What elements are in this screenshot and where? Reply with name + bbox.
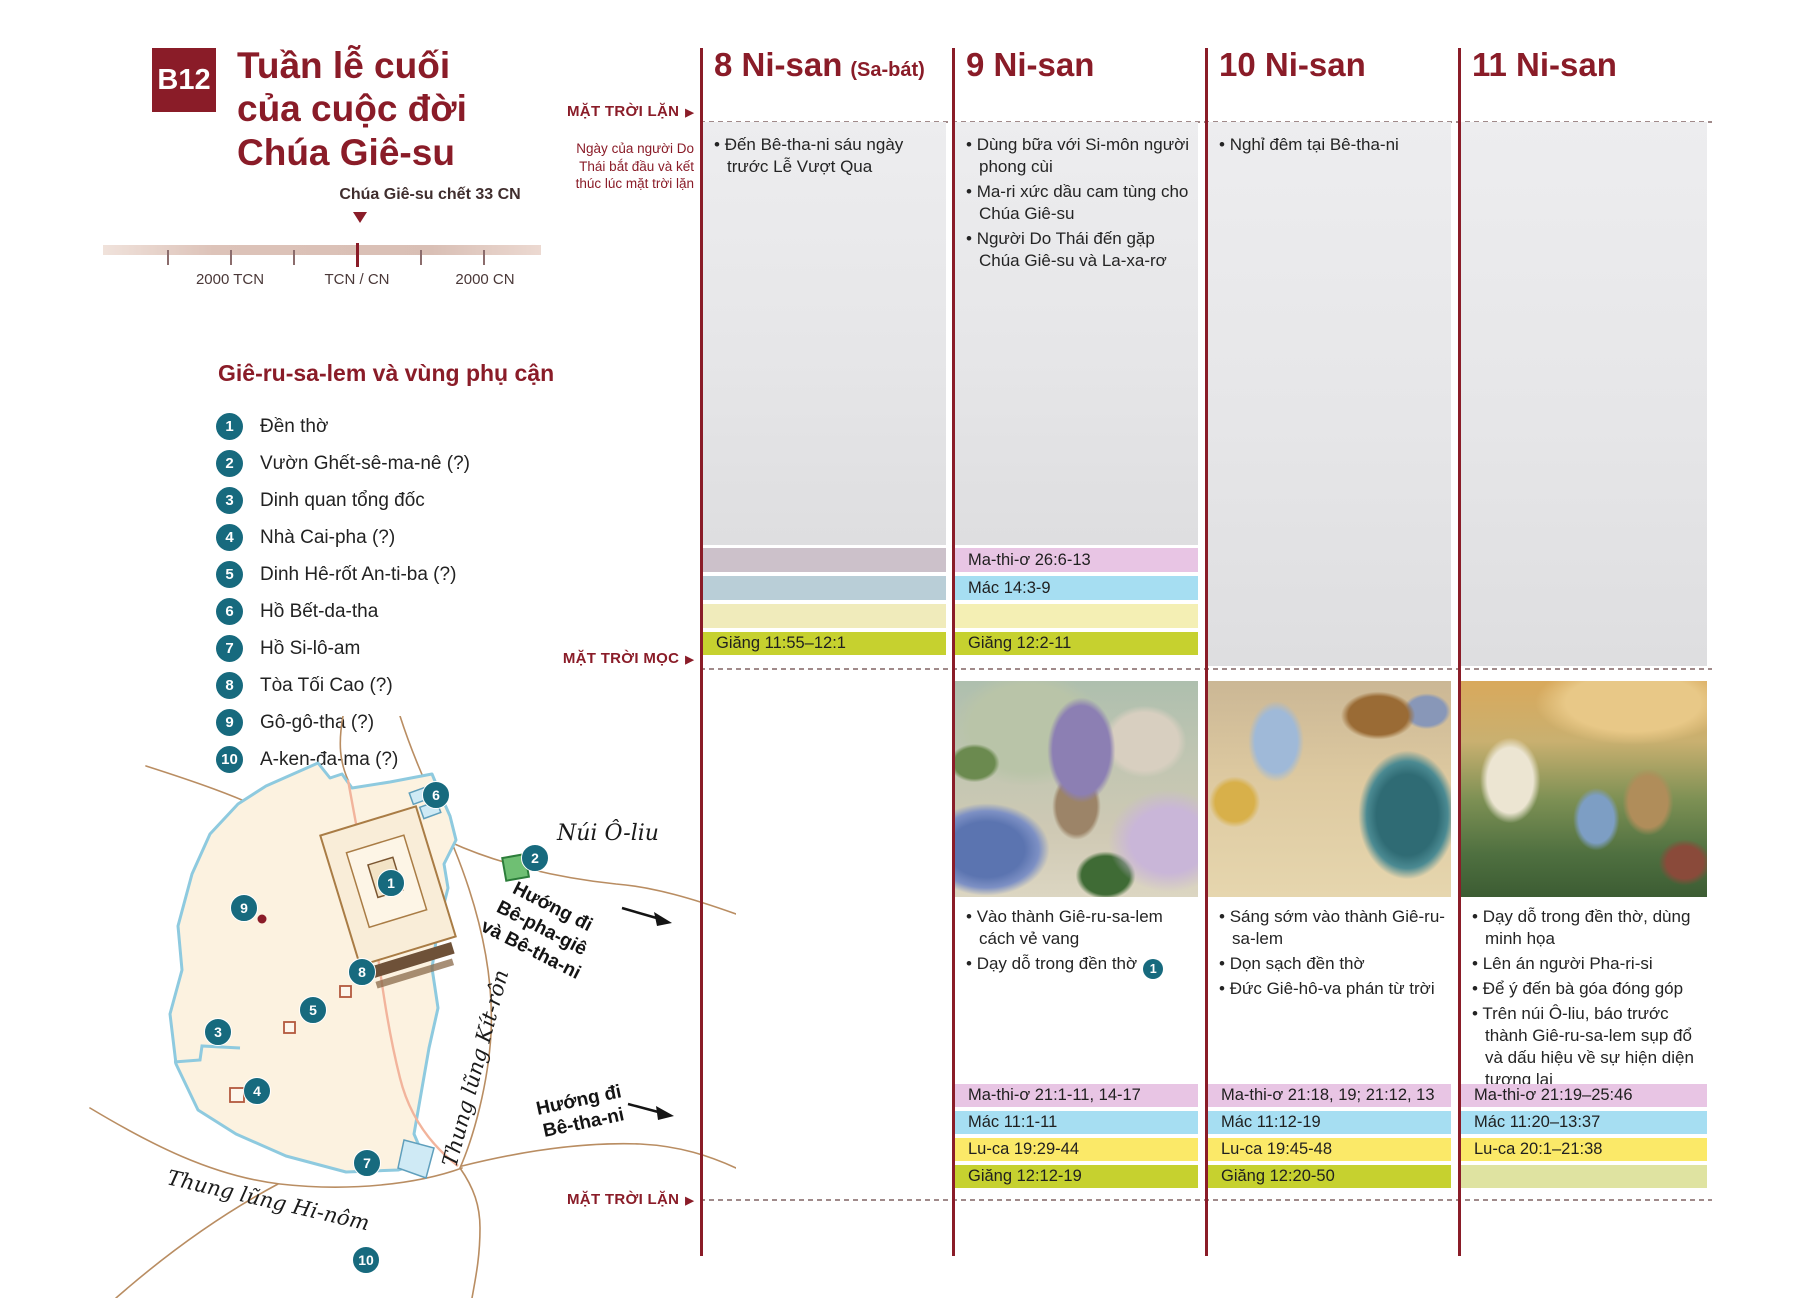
svg-text:3: 3 xyxy=(214,1024,222,1040)
column-10-nisan: 10 Ni-san Nghỉ đêm tại Bê-tha-ni Sáng sớ… xyxy=(1208,0,1451,1300)
legend-item-label: Hồ Bết-da-tha xyxy=(260,601,378,623)
scripture-ref: Mác 14:3-9 xyxy=(955,579,1051,598)
legend-item-label: Dinh quan tổng đốc xyxy=(260,490,425,512)
column-8-nisan: 8 Ni-san(Sa-bát) Đến Bê-tha-ni sáu ngày … xyxy=(703,0,946,1300)
sunrise-text: MẶT TRỜI MỌC xyxy=(563,650,679,667)
scripture-ref: Ma-thi-ơ 21:18, 19; 21:12, 13 xyxy=(1208,1086,1435,1105)
sunset-top-text: MẶT TRỜI LẶN xyxy=(567,103,679,120)
legend-number-badge: 1 xyxy=(216,413,243,440)
legend-item-label: Nhà Cai-pha (?) xyxy=(260,527,395,549)
ref-band-john: Giăng 12:20-50 xyxy=(1208,1165,1451,1188)
event-item: Lên án người Pha-ri-si xyxy=(1472,953,1701,975)
ref-band-luke-empty xyxy=(703,604,946,628)
scripture-ref: Giăng 12:12-19 xyxy=(955,1167,1082,1186)
timeline-tick xyxy=(293,250,295,265)
ref-band-mark: Mác 11:20–13:37 xyxy=(1461,1111,1707,1134)
event-item: Dùng bữa với Si-môn người phong cùi xyxy=(966,134,1192,178)
legend-item: 2Vườn Ghết-sê-ma-nê (?) xyxy=(216,445,636,482)
map-label-kidron-valley: Thung lũng Kít-rôn xyxy=(438,967,514,1169)
map-marker-5: 5 xyxy=(300,997,327,1024)
scripture-ref: Ma-thi-ơ 21:1-11, 14-17 xyxy=(955,1086,1141,1105)
legend-item-label: Đền thờ xyxy=(260,416,328,438)
svg-text:5: 5 xyxy=(309,1002,317,1018)
sunset-top-label: MẶT TRỜI LẶN▶ xyxy=(474,103,694,120)
map-ref-badge: 1 xyxy=(1143,959,1163,979)
ref-band-mark: Mác 11:12-19 xyxy=(1208,1111,1451,1134)
event-text: Ma-ri xức dầu cam tùng cho Chúa Giê-su xyxy=(977,182,1189,223)
infographic-canvas: B12 Tuần lễ cuối của cuộc đời Chúa Giê-s… xyxy=(0,0,1800,1300)
jewish-day-note: Ngày của người Do Thái bắt đầu và kết th… xyxy=(558,140,694,193)
chart-id-badge: B12 xyxy=(152,48,216,112)
event-text: Nghỉ đêm tại Bê-tha-ni xyxy=(1230,135,1399,154)
event-text: Lên án người Pha-ri-si xyxy=(1483,954,1653,973)
sunrise-label: MẶT TRỜI MỌC▶ xyxy=(474,650,694,667)
legend-item-label: Dinh Hê-rốt An-ti-ba (?) xyxy=(260,564,456,586)
svg-text:4: 4 xyxy=(253,1083,261,1099)
column-9-nisan: 9 Ni-san Dùng bữa với Si-môn người phong… xyxy=(955,0,1198,1300)
scripture-ref: Giăng 12:20-50 xyxy=(1208,1167,1335,1186)
legend-number-badge: 7 xyxy=(216,635,243,662)
svg-text:10: 10 xyxy=(358,1252,374,1268)
event-item: Trên núi Ô-liu, báo trước thành Giê-ru-s… xyxy=(1472,1003,1701,1091)
night-panel xyxy=(1208,122,1451,666)
scripture-ref: Lu-ca 19:45-48 xyxy=(1208,1140,1332,1159)
map-label-road-bethany: Hướng đi Bê-tha-ni xyxy=(534,1081,628,1142)
column-11-nisan: 11 Ni-san Dạy dỗ trong đền thờ, dùng min… xyxy=(1461,0,1707,1300)
legend-number-badge: 4 xyxy=(216,524,243,551)
map-marker-2: 2 xyxy=(522,845,549,872)
timeline-death-label: Chúa Giê-su chết 33 CN xyxy=(300,186,560,204)
night-events: Nghỉ đêm tại Bê-tha-ni xyxy=(1219,134,1445,159)
night-panel xyxy=(1461,122,1707,666)
ref-band-luke: Lu-ca 19:29-44 xyxy=(955,1138,1198,1161)
triangle-right-icon: ▶ xyxy=(685,1195,694,1207)
map-label-hinnom-valley: Thung lũng Hi-nôm xyxy=(165,1165,372,1235)
event-text: Đức Giê-hô-va phán từ trời xyxy=(1230,979,1435,998)
event-item: Để ý đến bà góa đóng góp xyxy=(1472,978,1701,1000)
ref-band-matthew: Ma-thi-ơ 21:19–25:46 xyxy=(1461,1084,1707,1107)
ref-band-matthew: Ma-thi-ơ 26:6-13 xyxy=(955,548,1198,572)
legend-item: 4Nhà Cai-pha (?) xyxy=(216,519,636,556)
legend-number-badge: 2 xyxy=(216,450,243,477)
ref-band-mark: Mác 14:3-9 xyxy=(955,576,1198,600)
timeline-tick xyxy=(420,250,422,265)
event-item: Người Do Thái đến gặp Chúa Giê-su và La-… xyxy=(966,228,1192,272)
ref-band-luke: Lu-ca 20:1–21:38 xyxy=(1461,1138,1707,1161)
sunset-bottom-text: MẶT TRỜI LẶN xyxy=(567,1191,679,1208)
night-panel xyxy=(703,122,946,545)
timeline-tick-label: 2000 CN xyxy=(435,271,535,288)
legend-number-badge: 3 xyxy=(216,487,243,514)
ref-band-john: Giăng 12:12-19 xyxy=(955,1165,1198,1188)
event-text: Dùng bữa với Si-môn người phong cùi xyxy=(977,135,1189,176)
event-item: Đến Bê-tha-ni sáu ngày trước Lễ Vượt Qua xyxy=(714,134,940,178)
map-marker-9: 9 xyxy=(231,895,258,922)
scripture-ref: Lu-ca 20:1–21:38 xyxy=(1461,1140,1602,1159)
event-text: Trên núi Ô-liu, báo trước thành Giê-ru-s… xyxy=(1482,1004,1694,1089)
event-text: Vào thành Giê-ru-sa-lem cách vẻ vang xyxy=(977,907,1163,948)
event-text: Sáng sớm vào thành Giê-ru-sa-lem xyxy=(1230,907,1445,948)
map-golgotha-dot xyxy=(258,915,267,924)
map-marker-6: 6 xyxy=(423,782,450,809)
jerusalem-map: Núi Ô-liu Hướng đi Bê-pha-giê và Bê-tha-… xyxy=(88,716,736,1298)
night-events: Dùng bữa với Si-môn người phong cùi Ma-r… xyxy=(966,134,1192,275)
timeline-tick-bc-ad xyxy=(356,243,359,267)
column-header: 11 Ni-san xyxy=(1472,46,1617,84)
column-header: 10 Ni-san xyxy=(1219,46,1366,84)
triangle-right-icon: ▶ xyxy=(685,654,694,666)
event-text: Đến Bê-tha-ni sáu ngày trước Lễ Vượt Qua xyxy=(725,135,904,176)
map-marker-3: 3 xyxy=(205,1019,232,1046)
svg-text:8: 8 xyxy=(358,964,366,980)
map-arrow-bethphage xyxy=(622,908,672,926)
column-header: 9 Ni-san xyxy=(966,46,1094,84)
event-item: Vào thành Giê-ru-sa-lem cách vẻ vang xyxy=(966,906,1192,950)
event-text: Dạy dỗ trong đền thờ xyxy=(977,954,1137,973)
legend-item: 5Dinh Hê-rốt An-ti-ba (?) xyxy=(216,556,636,593)
map-label-mount-of-olives: Núi Ô-liu xyxy=(556,819,659,846)
event-item: Dọn sạch đền thờ xyxy=(1219,953,1445,975)
legend-item: 6Hồ Bết-da-tha xyxy=(216,593,636,630)
svg-text:9: 9 xyxy=(240,900,248,916)
event-item: Sáng sớm vào thành Giê-ru-sa-lem xyxy=(1219,906,1445,950)
map-marker-1: 1 xyxy=(378,870,405,897)
illustration-olivet-discourse xyxy=(1461,681,1707,897)
svg-text:7: 7 xyxy=(363,1155,371,1171)
timeline-tick xyxy=(483,250,485,265)
legend-item: 8Tòa Tối Cao (?) xyxy=(216,667,636,704)
illustration-cleansing-temple xyxy=(1208,681,1451,897)
legend-item: 3Dinh quan tổng đốc xyxy=(216,482,636,519)
timeline-marker-icon xyxy=(353,212,367,223)
ref-band-luke: Lu-ca 19:45-48 xyxy=(1208,1138,1451,1161)
svg-text:6: 6 xyxy=(432,787,440,803)
legend-item-label: Vườn Ghết-sê-ma-nê (?) xyxy=(260,453,470,475)
ref-band-luke-empty xyxy=(955,604,1198,628)
ref-band-matthew: Ma-thi-ơ 21:18, 19; 21:12, 13 xyxy=(1208,1084,1451,1107)
ref-band-matthew-empty xyxy=(703,548,946,572)
day-events: Sáng sớm vào thành Giê-ru-sa-lem Dọn sạc… xyxy=(1219,906,1445,1003)
event-item: Dạy dỗ trong đền thờ1 xyxy=(966,953,1192,979)
scripture-ref: Mác 11:1-11 xyxy=(955,1113,1057,1132)
day-suffix: (Sa-bát) xyxy=(850,59,924,81)
ref-band-john-empty xyxy=(1461,1165,1707,1188)
legend-number-badge: 8 xyxy=(216,672,243,699)
scripture-ref: Mác 11:20–13:37 xyxy=(1461,1113,1600,1132)
event-text: Dạy dỗ trong đền thờ, dùng minh họa xyxy=(1483,907,1691,948)
legend-number-badge: 6 xyxy=(216,598,243,625)
timeline-tick-label: 2000 TCN xyxy=(180,271,280,288)
ref-band-mark: Mác 11:1-11 xyxy=(955,1111,1198,1134)
map-marker-7: 7 xyxy=(354,1150,381,1177)
map-marker-8: 8 xyxy=(349,959,376,986)
page-title-line: Tuần lễ cuối xyxy=(237,44,657,87)
timeline-tick xyxy=(230,250,232,265)
column-header: 8 Ni-san(Sa-bát) xyxy=(714,46,925,84)
svg-text:2: 2 xyxy=(531,850,539,866)
event-text: Dọn sạch đền thờ xyxy=(1230,954,1365,973)
ref-band-john: Giăng 11:55–12:1 xyxy=(703,632,946,655)
timeline-tick xyxy=(167,250,169,265)
day-events: Vào thành Giê-ru-sa-lem cách vẻ vang Dạy… xyxy=(966,906,1192,982)
day-name: 8 Ni-san xyxy=(714,46,842,83)
scripture-ref: Ma-thi-ơ 26:6-13 xyxy=(955,551,1091,570)
legend-item-label: Tòa Tối Cao (?) xyxy=(260,675,393,697)
map-label-road-bethphage: Hướng đi Bê-pha-giê và Bê-tha-ni xyxy=(477,873,605,984)
ref-band-john: Giăng 12:2-11 xyxy=(955,632,1198,655)
day-name: 11 Ni-san xyxy=(1472,46,1617,83)
svg-text:1: 1 xyxy=(387,875,395,891)
scripture-ref: Mác 11:12-19 xyxy=(1208,1113,1321,1132)
day-name: 10 Ni-san xyxy=(1219,46,1366,83)
event-item: Dạy dỗ trong đền thờ, dùng minh họa xyxy=(1472,906,1701,950)
event-text: Để ý đến bà góa đóng góp xyxy=(1483,979,1683,998)
day-name: 9 Ni-san xyxy=(966,46,1094,83)
event-item: Ma-ri xức dầu cam tùng cho Chúa Giê-su xyxy=(966,181,1192,225)
event-item: Đức Giê-hô-va phán từ trời xyxy=(1219,978,1445,1000)
legend-item-label: Hồ Si-lô-am xyxy=(260,638,360,660)
night-events: Đến Bê-tha-ni sáu ngày trước Lễ Vượt Qua xyxy=(714,134,940,181)
map-marker-4: 4 xyxy=(244,1078,271,1105)
illustration-triumphal-entry xyxy=(955,681,1198,897)
map-marker-10: 10 xyxy=(353,1247,380,1274)
map-arrow-bethany xyxy=(628,1104,674,1120)
event-item: Nghỉ đêm tại Bê-tha-ni xyxy=(1219,134,1445,156)
legend-number-badge: 5 xyxy=(216,561,243,588)
ref-band-mark-empty xyxy=(703,576,946,600)
map-pool-siloam xyxy=(398,1140,434,1178)
timeline-tick-label: TCN / CN xyxy=(307,271,407,288)
scripture-ref: Ma-thi-ơ 21:19–25:46 xyxy=(1461,1086,1633,1105)
triangle-right-icon: ▶ xyxy=(685,107,694,119)
map-legend-heading: Giê-ru-sa-lem và vùng phụ cận xyxy=(218,360,554,387)
scripture-ref: Giăng 12:2-11 xyxy=(955,634,1071,653)
event-text: Người Do Thái đến gặp Chúa Giê-su và La-… xyxy=(977,229,1167,270)
sunset-bottom-label: MẶT TRỜI LẶN▶ xyxy=(474,1191,694,1208)
day-events: Dạy dỗ trong đền thờ, dùng minh họa Lên … xyxy=(1472,906,1701,1094)
scripture-ref: Giăng 11:55–12:1 xyxy=(703,634,846,653)
ref-band-matthew: Ma-thi-ơ 21:1-11, 14-17 xyxy=(955,1084,1198,1107)
legend-item: 1Đền thờ xyxy=(216,408,636,445)
scripture-ref: Lu-ca 19:29-44 xyxy=(955,1140,1079,1159)
